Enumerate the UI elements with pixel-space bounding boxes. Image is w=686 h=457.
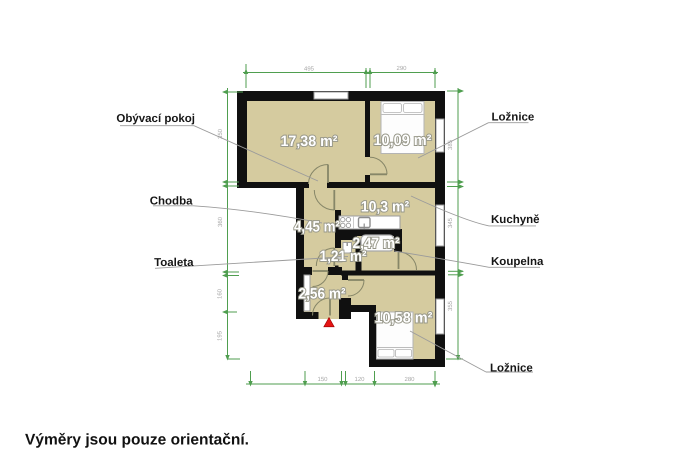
svg-text:2,56 m²: 2,56 m² xyxy=(299,286,346,303)
svg-text:150: 150 xyxy=(317,376,328,383)
svg-text:195: 195 xyxy=(217,330,224,341)
svg-text:Ložnice: Ložnice xyxy=(490,362,533,374)
svg-text:Ložnice: Ložnice xyxy=(492,111,535,123)
svg-text:17,38 m²: 17,38 m² xyxy=(281,133,338,150)
svg-text:10,09 m²: 10,09 m² xyxy=(374,132,432,149)
svg-text:495: 495 xyxy=(304,66,315,73)
svg-text:Výměry jsou pouze orientační.: Výměry jsou pouze orientační. xyxy=(25,432,249,449)
svg-text:120: 120 xyxy=(354,376,365,383)
svg-text:355: 355 xyxy=(447,300,454,311)
svg-text:Koupelna: Koupelna xyxy=(491,256,544,268)
svg-text:4,45 m²: 4,45 m² xyxy=(294,219,340,236)
svg-text:280: 280 xyxy=(404,376,415,383)
svg-text:1,21 m²: 1,21 m² xyxy=(320,248,367,265)
svg-text:290: 290 xyxy=(396,65,407,72)
svg-text:Chodba: Chodba xyxy=(150,195,193,207)
svg-text:Kuchyně: Kuchyně xyxy=(491,214,540,226)
svg-text:Obývací pokoj: Obývací pokoj xyxy=(116,113,195,125)
svg-text:10,3 m²: 10,3 m² xyxy=(361,199,410,216)
svg-text:10,58 m²: 10,58 m² xyxy=(375,310,433,327)
svg-text:Toaleta: Toaleta xyxy=(154,257,194,269)
svg-text:345: 345 xyxy=(447,217,454,228)
svg-text:160: 160 xyxy=(217,288,224,299)
svg-text:360: 360 xyxy=(217,216,224,227)
